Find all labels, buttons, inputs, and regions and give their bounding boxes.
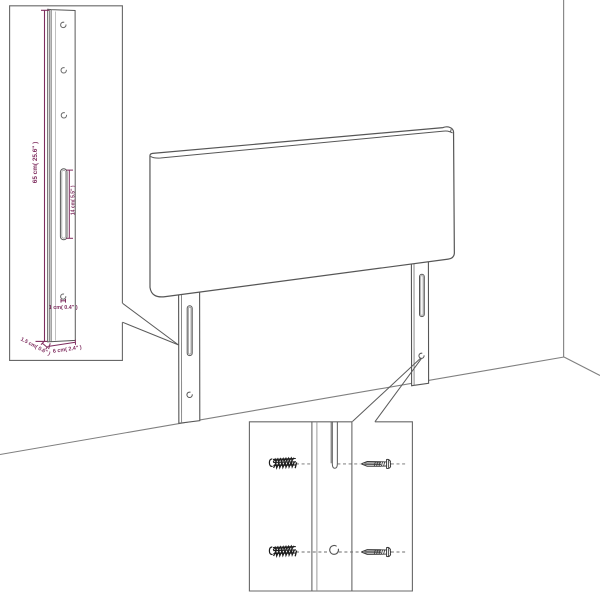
- svg-text:65 cm( 25.6" ): 65 cm( 25.6" ): [32, 142, 39, 183]
- svg-text:1 cm( 0.4" ): 1 cm( 0.4" ): [49, 305, 78, 311]
- svg-text:14 cm( 5.5" ): 14 cm( 5.5" ): [70, 185, 76, 215]
